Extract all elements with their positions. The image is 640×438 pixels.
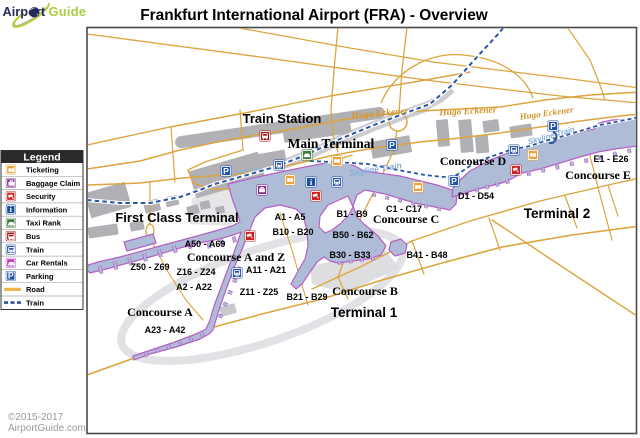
svg-text:B10 - B20: B10 - B20 (272, 227, 313, 237)
svg-text:A50 - A69: A50 - A69 (185, 239, 226, 249)
svg-text:B30 - B33: B30 - B33 (329, 250, 370, 260)
svg-text:A2 - A22: A2 - A22 (176, 282, 212, 292)
svg-text:Concourse A and Z: Concourse A and Z (187, 250, 285, 264)
svg-text:AirportGuide.com: AirportGuide.com (8, 423, 86, 434)
svg-text:P: P (223, 166, 229, 176)
svg-text:A23 - A42: A23 - A42 (145, 325, 186, 335)
svg-text:Z50 - Z69: Z50 - Z69 (130, 262, 169, 272)
svg-text:Legend: Legend (23, 152, 60, 164)
svg-text:B1 - B9: B1 - B9 (336, 209, 367, 219)
svg-text:Car Rentals: Car Rentals (26, 259, 68, 268)
svg-text:B50 - B62: B50 - B62 (332, 230, 373, 240)
svg-text:Concourse B: Concourse B (332, 284, 398, 298)
svg-text:Train: Train (26, 245, 44, 254)
svg-text:Concourse E: Concourse E (565, 168, 631, 182)
svg-text:Parking: Parking (26, 272, 54, 281)
svg-text:P: P (389, 140, 395, 150)
svg-text:Concourse D: Concourse D (440, 154, 507, 168)
svg-text:C1 - C17: C1 - C17 (386, 204, 422, 214)
svg-text:Z11 - Z25: Z11 - Z25 (240, 287, 279, 297)
svg-text:Ticketing: Ticketing (26, 165, 59, 174)
svg-text:B21 - B29: B21 - B29 (286, 292, 327, 302)
svg-text:Information: Information (26, 205, 68, 214)
svg-text:A11 - A21: A11 - A21 (246, 265, 286, 275)
svg-text:Z16 - Z24: Z16 - Z24 (176, 267, 215, 277)
svg-text:Concourse C: Concourse C (373, 212, 439, 226)
svg-text:Main Terminal: Main Terminal (288, 136, 375, 151)
svg-text:Train Station: Train Station (243, 111, 322, 126)
svg-text:Security: Security (26, 192, 56, 201)
svg-text:B41 - B48: B41 - B48 (406, 250, 447, 260)
svg-text:Concourse A: Concourse A (127, 305, 193, 319)
svg-text:Frankfurt International Airpor: Frankfurt International Airport (FRA) - … (140, 7, 487, 24)
svg-text:A1 - A5: A1 - A5 (275, 212, 306, 222)
svg-text:E1 - E26: E1 - E26 (593, 154, 628, 164)
svg-text:Terminal 1: Terminal 1 (331, 305, 398, 320)
svg-text:Guide: Guide (49, 4, 87, 19)
svg-text:P: P (8, 271, 14, 281)
svg-text:D1 - D54: D1 - D54 (458, 191, 494, 201)
svg-text:P: P (550, 121, 556, 131)
svg-text:First Class Terminal: First Class Terminal (115, 210, 238, 225)
svg-text:Train: Train (26, 298, 44, 307)
svg-text:P: P (451, 176, 457, 186)
svg-text:Road: Road (26, 285, 45, 294)
svg-text:Taxi Rank: Taxi Rank (26, 219, 62, 228)
svg-text:Terminal 2: Terminal 2 (524, 206, 591, 221)
svg-text:Baggage Claim: Baggage Claim (26, 179, 81, 188)
svg-text:©2015-2017: ©2015-2017 (8, 412, 64, 423)
svg-text:Bus: Bus (26, 232, 40, 241)
